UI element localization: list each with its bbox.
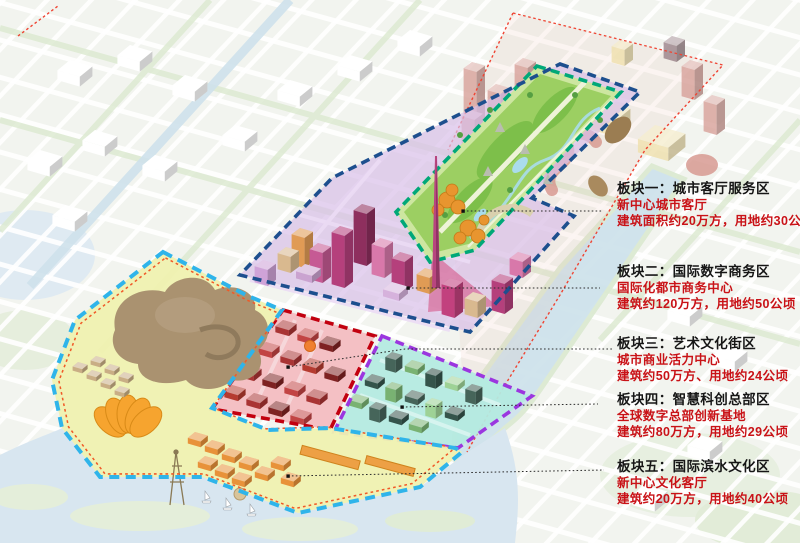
masterplan-figure: 板块一：城市客厅服务区 新中心城市客厅 建筑面积约20万方，用地约30公顷 板块… [0,0,800,543]
leader-dot-4 [400,405,403,408]
leader-dot-1 [461,209,464,212]
panel-2-title: 板块二：国际数字商务区 [617,263,796,280]
panel-block-4: 板块四：智慧科创总部区 全球数字总部创新基地 建筑约80万方，用地约29公顷 [617,391,788,440]
panel-5-metrics: 建筑约20万方，用地约40公顷 [617,491,788,507]
panel-4-title: 板块四：智慧科创总部区 [617,391,788,408]
panel-3-title: 板块三：艺术文化街区 [617,335,788,352]
panel-2-metrics: 建筑约120万方，用地约50公顷 [617,296,796,312]
leader-dot-2 [406,286,409,289]
panel-5-title: 板块五：国际滨水文化区 [617,458,788,475]
leader-dot-5 [286,474,289,477]
panel-1-subtitle: 新中心城市客厅 [617,197,800,213]
panel-5-subtitle: 新中心文化客厅 [617,475,788,491]
panel-3-subtitle: 城市商业活力中心 [617,352,788,368]
panel-block-5: 板块五：国际滨水文化区 新中心文化客厅 建筑约20万方，用地约40公顷 [617,458,788,507]
panel-2-subtitle: 国际化都市商务中心 [617,280,796,296]
leader-dot-3 [286,365,289,368]
panel-1-title: 板块一：城市客厅服务区 [617,180,800,197]
panel-3-metrics: 建筑约50万方、用地约24公顷 [617,368,788,384]
panel-4-metrics: 建筑约80万方，用地约29公顷 [617,424,788,440]
panel-4-subtitle: 全球数字总部创新基地 [617,408,788,424]
panel-1-metrics: 建筑面积约20万方，用地约30公顷 [617,213,800,229]
panel-block-1: 板块一：城市客厅服务区 新中心城市客厅 建筑面积约20万方，用地约30公顷 [617,180,800,229]
panel-block-2: 板块二：国际数字商务区 国际化都市商务中心 建筑约120万方，用地约50公顷 [617,263,796,312]
sphere-landmark [305,341,316,352]
panel-block-3: 板块三：艺术文化街区 城市商业活力中心 建筑约50万方、用地约24公顷 [617,335,788,384]
